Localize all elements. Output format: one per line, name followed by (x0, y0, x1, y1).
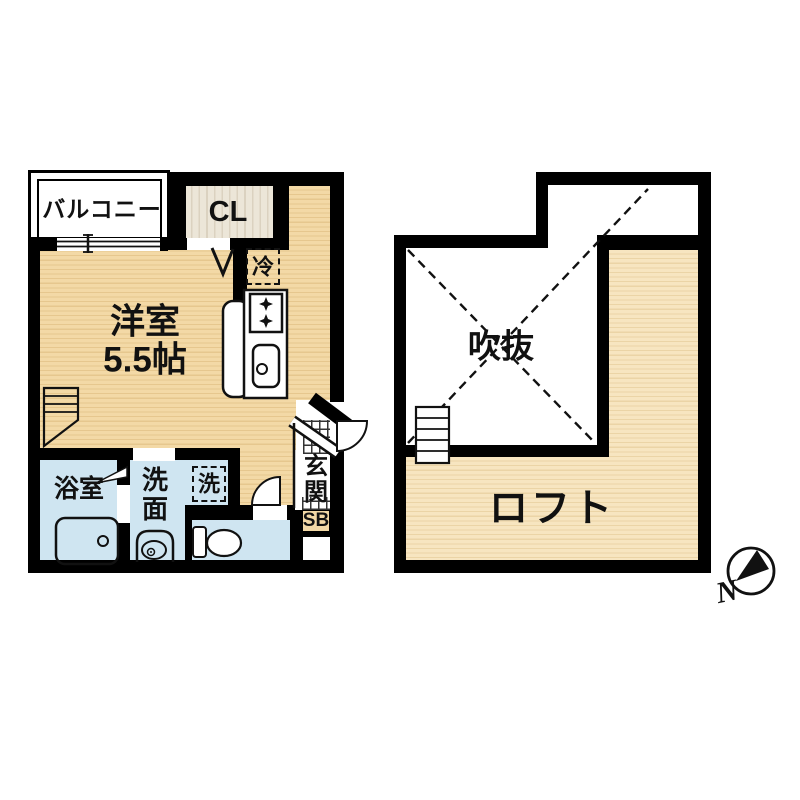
front-door-arc-icon (337, 421, 367, 451)
wall (28, 238, 40, 573)
refrigerator-label: 冷 (252, 255, 274, 278)
wall (273, 184, 289, 242)
compass-north-label: N (713, 574, 741, 609)
wall (175, 448, 228, 460)
toilet-doorway (253, 505, 287, 520)
toilet-room (192, 520, 290, 560)
wall (28, 448, 133, 460)
wall (168, 172, 186, 242)
wall (597, 235, 711, 250)
wall (28, 560, 344, 573)
closet-opening (187, 238, 230, 250)
wall (394, 235, 406, 573)
floor-plan-canvas: バルコニー CL 冷 洋室 5.5帖 浴室 洗面 洗 玄関 SB 吹抜 ロフト … (0, 0, 800, 800)
room-size-label: 5.5帖 (103, 343, 187, 380)
wall (698, 172, 711, 573)
wall (168, 238, 187, 250)
wall (168, 172, 344, 186)
washroom-label: 洗面 (141, 466, 169, 524)
wall (394, 560, 711, 573)
wall (233, 240, 247, 347)
entrance-label: 玄関 (303, 454, 329, 506)
closet-label: CL (209, 197, 248, 227)
void-label: 吹抜 (468, 330, 534, 365)
wall (394, 445, 607, 457)
shoebox-label: SB (303, 511, 329, 531)
loft-label: ロフト (489, 490, 615, 531)
window-opening (57, 238, 160, 251)
washroom-doorway (133, 448, 175, 461)
bathroom-label: 浴室 (54, 476, 104, 502)
wall (330, 184, 344, 402)
hallway-floor (240, 448, 294, 512)
western-room-label: 洋室 (110, 305, 180, 342)
wall (394, 235, 548, 248)
entrance-tile-upper (303, 420, 330, 454)
wall (597, 235, 609, 457)
wall (536, 172, 711, 185)
washing-machine-label: 洗 (198, 472, 220, 495)
kitchen-corridor-floor (289, 186, 330, 247)
wall (185, 520, 192, 560)
wall (228, 448, 240, 520)
wall (40, 238, 57, 251)
wall (160, 238, 168, 251)
balcony-label: バルコニー (42, 197, 162, 221)
bathroom-doorway (117, 485, 130, 523)
entrance-porch (303, 537, 330, 560)
